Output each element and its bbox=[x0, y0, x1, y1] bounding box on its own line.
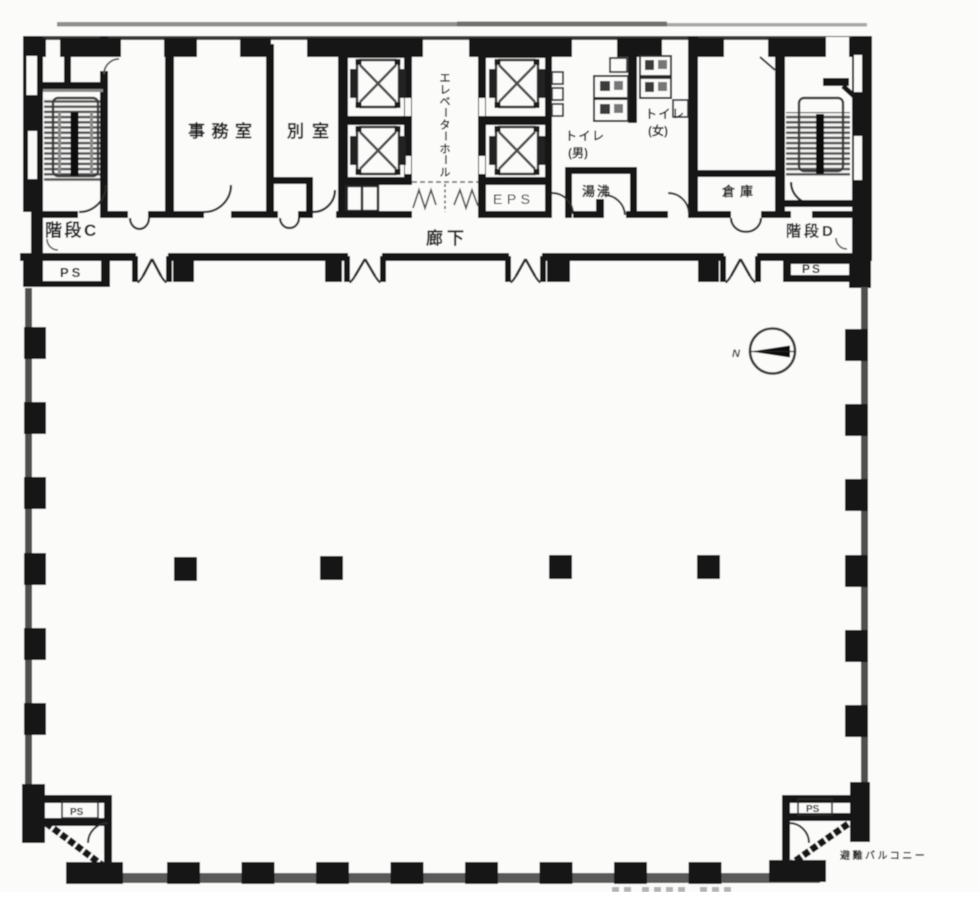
svg-text:トイレ: トイレ bbox=[565, 129, 606, 143]
svg-text:事務室: 事務室 bbox=[188, 121, 259, 141]
svg-text:ホ: ホ bbox=[440, 142, 451, 155]
svg-text:湯沸: 湯沸 bbox=[582, 184, 612, 199]
svg-text:倉庫: 倉庫 bbox=[721, 184, 758, 199]
svg-text:N: N bbox=[732, 348, 741, 360]
svg-text:階段C: 階段C bbox=[45, 220, 99, 240]
svg-text:トイレ: トイレ bbox=[645, 107, 686, 121]
svg-text:別室: 別室 bbox=[286, 121, 337, 141]
svg-text:タ: タ bbox=[440, 119, 451, 132]
svg-text:廊下: 廊下 bbox=[426, 228, 468, 248]
svg-text:ー: ー bbox=[439, 131, 451, 142]
svg-text:EPS: EPS bbox=[493, 191, 535, 207]
svg-text:レ: レ bbox=[440, 84, 451, 96]
svg-text:(女): (女) bbox=[648, 123, 668, 138]
svg-text:PS: PS bbox=[70, 807, 84, 818]
svg-text:PS: PS bbox=[806, 804, 820, 815]
svg-text:PS: PS bbox=[60, 265, 83, 280]
svg-text:(男): (男) bbox=[568, 146, 588, 160]
svg-text:エ: エ bbox=[440, 73, 451, 85]
svg-text:ー: ー bbox=[439, 154, 451, 165]
svg-text:避難バルコニー: 避難バルコニー bbox=[839, 849, 927, 862]
svg-text:階段D: 階段D bbox=[786, 222, 836, 240]
svg-text:ル: ル bbox=[440, 167, 451, 179]
svg-text:ー: ー bbox=[439, 107, 451, 118]
svg-text:PS: PS bbox=[802, 262, 822, 276]
